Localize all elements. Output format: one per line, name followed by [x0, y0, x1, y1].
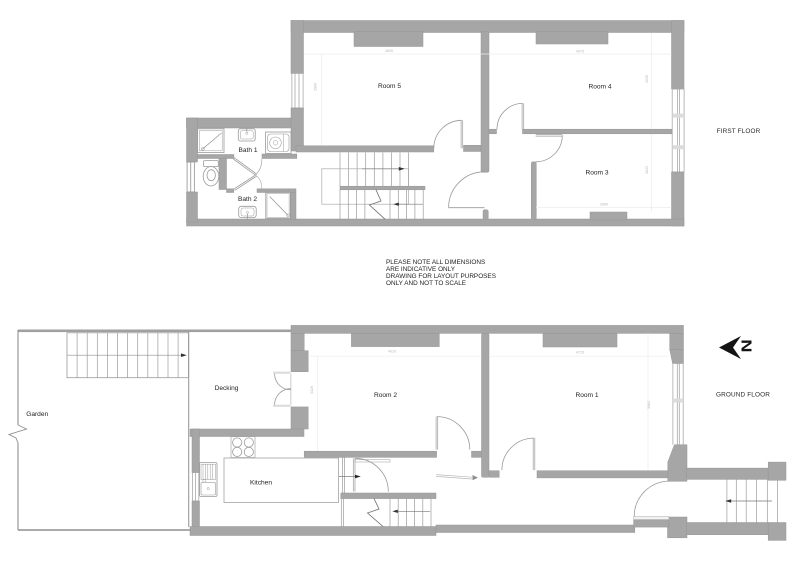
svg-text:PLEASE NOTE ALL DIMENSIONS: PLEASE NOTE ALL DIMENSIONS	[386, 259, 485, 266]
svg-text:ONLY AND NOT TO SCALE: ONLY AND NOT TO SCALE	[386, 280, 466, 287]
svg-text:Kitchen: Kitchen	[250, 480, 272, 487]
svg-text:3900: 3900	[314, 83, 318, 91]
svg-text:GROUND FLOOR: GROUND FLOOR	[716, 392, 770, 399]
svg-text:3326: 3326	[310, 386, 314, 394]
svg-text:3960: 3960	[600, 203, 608, 207]
svg-text:4835: 4835	[385, 49, 393, 53]
svg-text:4075: 4075	[576, 50, 584, 54]
svg-text:Decking: Decking	[215, 385, 239, 392]
svg-text:Room 3: Room 3	[585, 170, 608, 177]
svg-text:2843: 2843	[645, 166, 649, 174]
svg-text:DRAWING FOR LAYOUT PURPOSES: DRAWING FOR LAYOUT PURPOSES	[386, 273, 496, 280]
svg-text:Room 1: Room 1	[575, 392, 598, 399]
svg-text:3962: 3962	[647, 401, 651, 409]
svg-text:Garden: Garden	[26, 411, 48, 418]
svg-text:2635: 2635	[645, 75, 649, 83]
svg-text:N: N	[738, 339, 755, 352]
svg-text:4715: 4715	[576, 351, 584, 355]
svg-text:4010: 4010	[388, 350, 396, 354]
svg-text:Room 5: Room 5	[378, 83, 401, 90]
svg-text:Bath 2: Bath 2	[238, 196, 257, 203]
svg-text:ARE INDICATIVE ONLY: ARE INDICATIVE ONLY	[386, 266, 456, 273]
svg-text:Room 2: Room 2	[374, 392, 397, 399]
svg-text:Bath 1: Bath 1	[238, 147, 257, 154]
svg-text:Room 4: Room 4	[588, 84, 611, 91]
svg-text:FIRST FLOOR: FIRST FLOOR	[717, 128, 761, 135]
